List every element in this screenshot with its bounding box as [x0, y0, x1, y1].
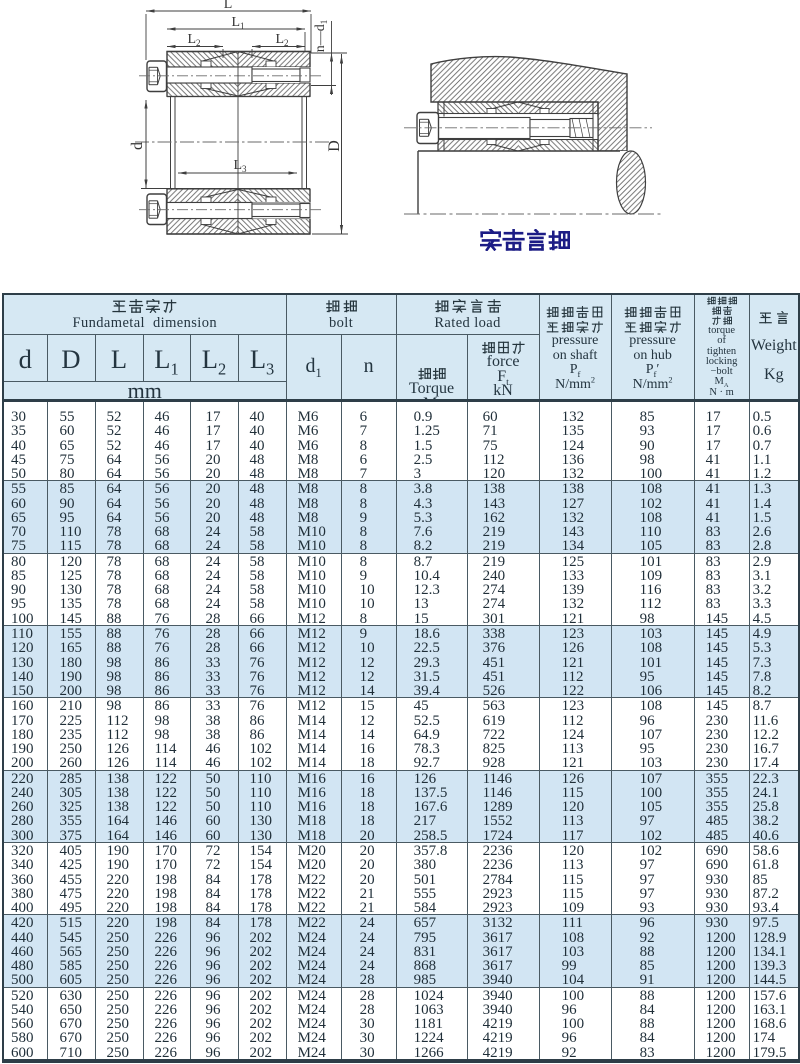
- svg-text:L: L: [224, 0, 233, 12]
- svg-text:D: D: [326, 140, 343, 152]
- svg-text:L2: L2: [187, 32, 200, 48]
- svg-text:d: d: [129, 142, 146, 150]
- svg-text:L1: L1: [231, 15, 244, 31]
- svg-text:n—d1: n—d1: [313, 20, 329, 53]
- svg-text:L3: L3: [233, 158, 247, 174]
- svg-text:L2: L2: [275, 32, 288, 48]
